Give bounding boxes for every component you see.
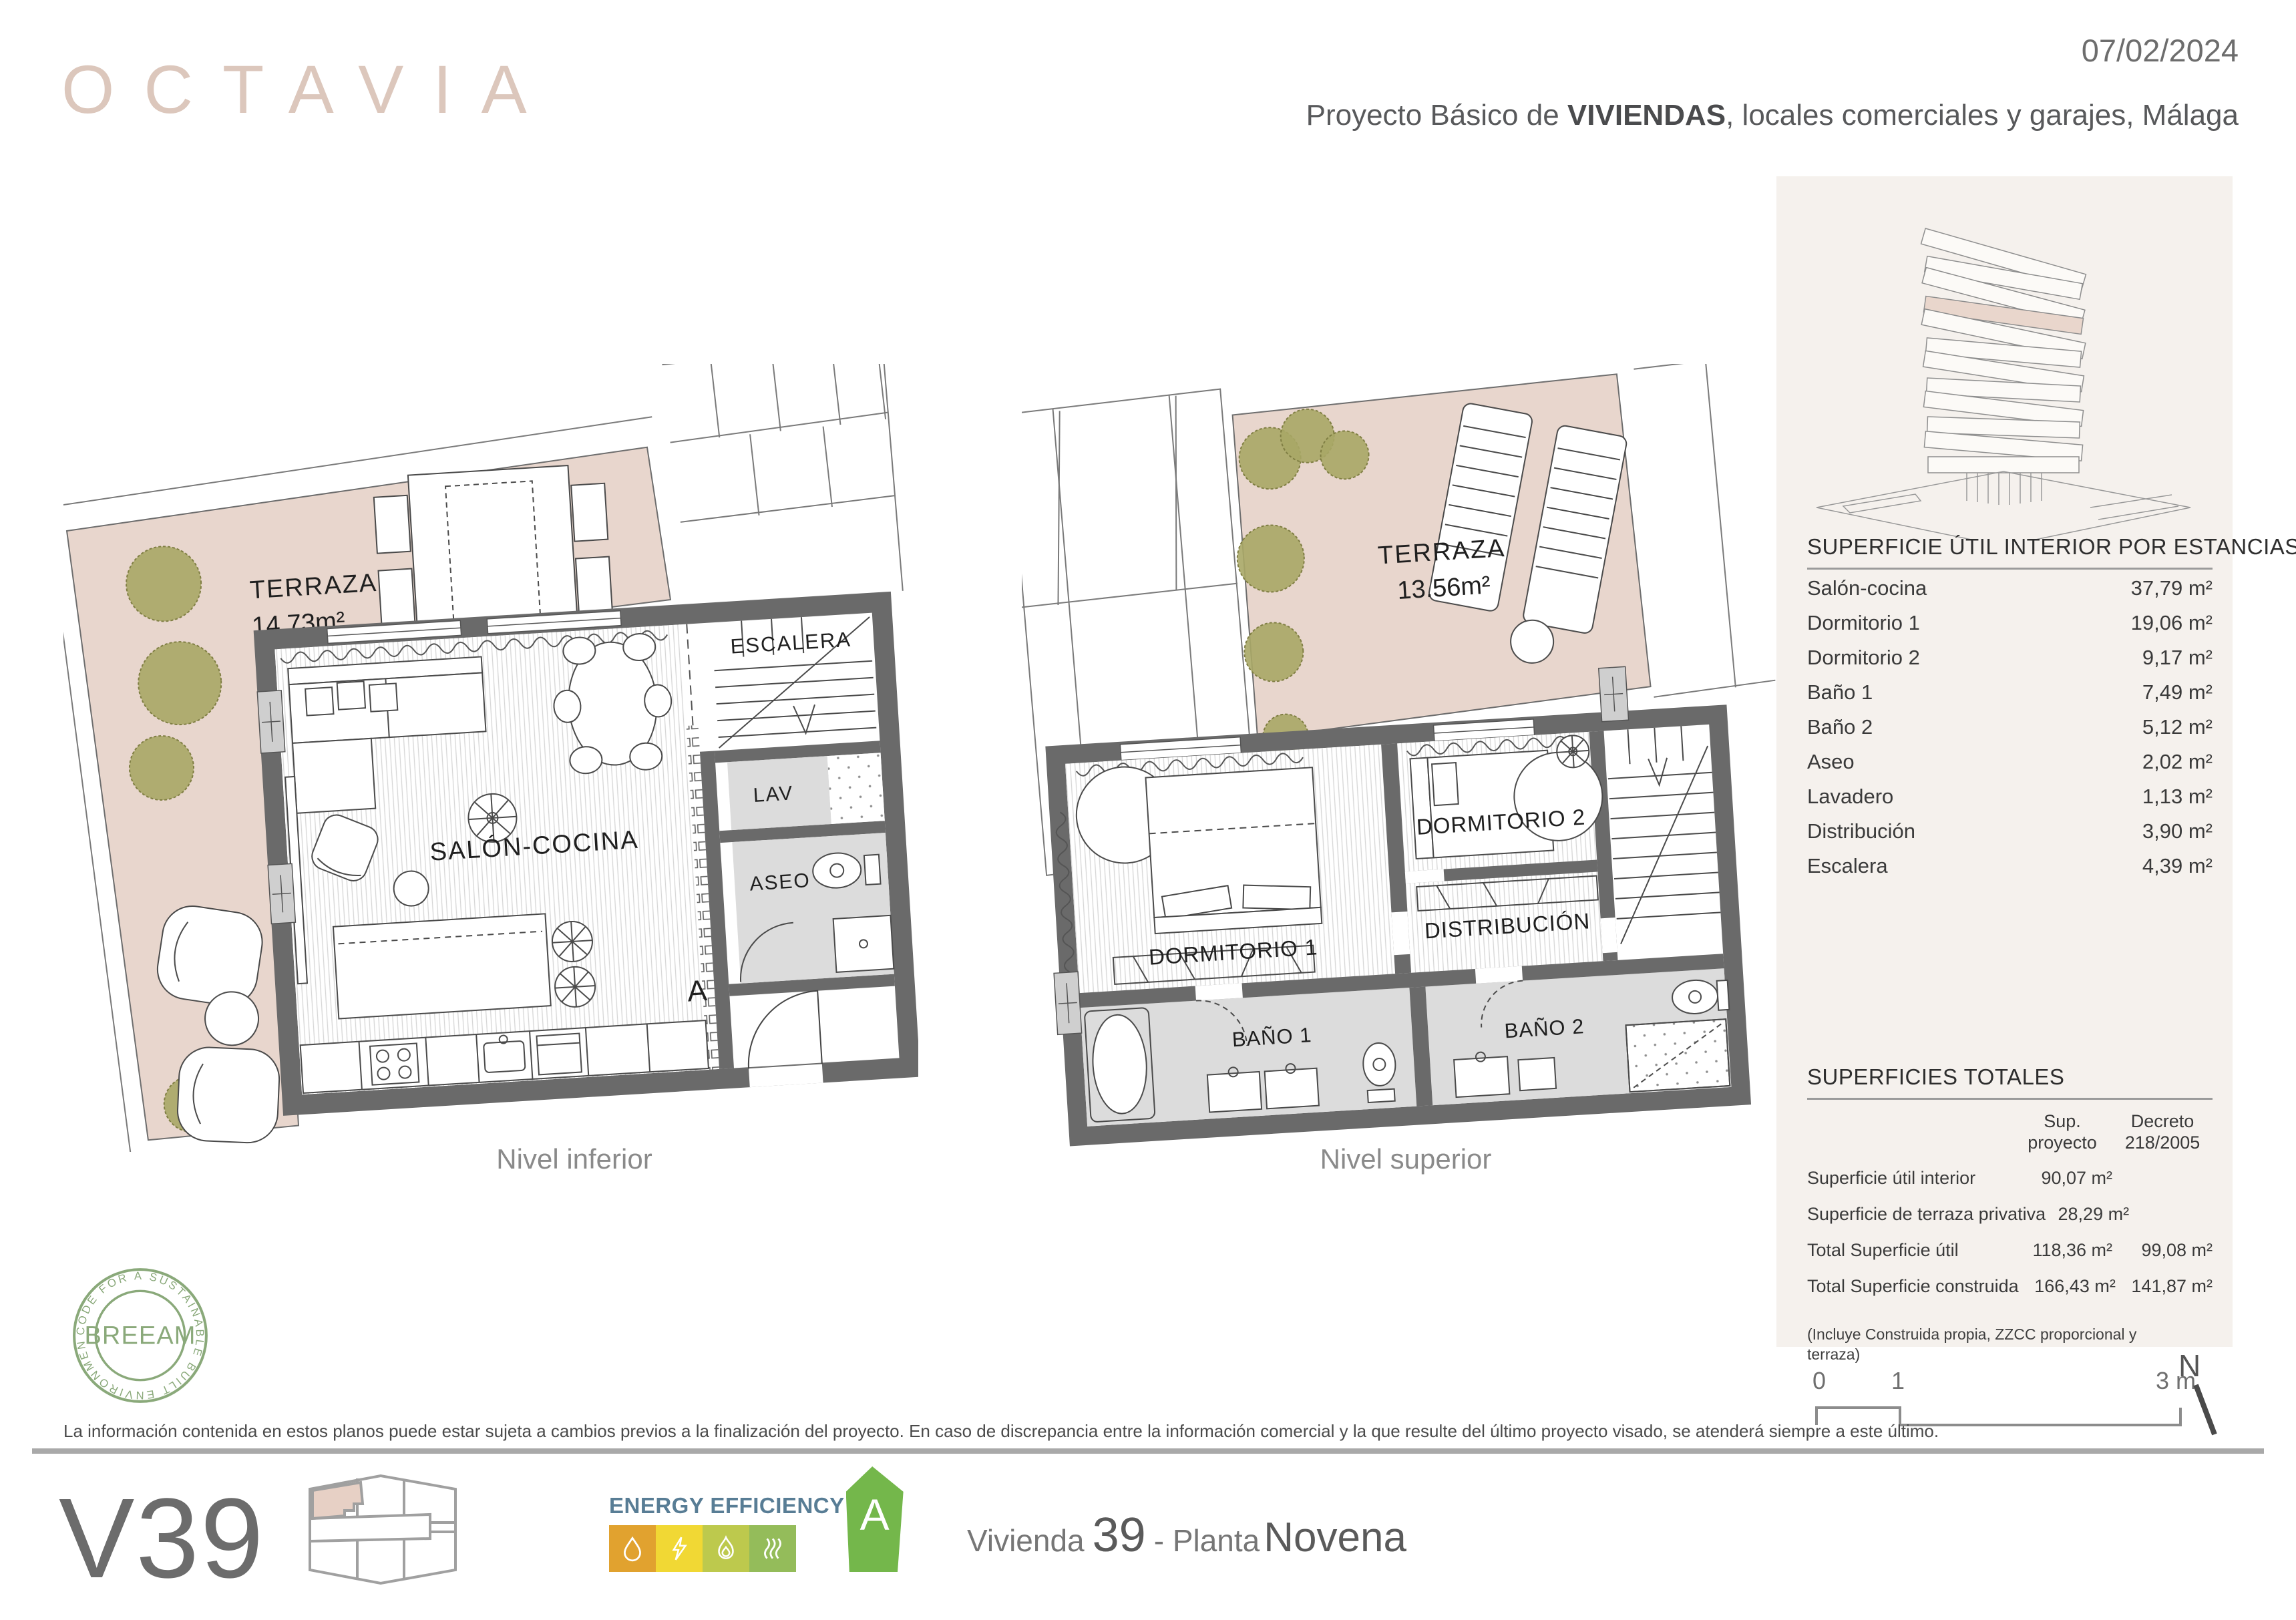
breeam-center-text: BREEAM	[84, 1322, 196, 1350]
row-value: 5,12 m²	[2142, 715, 2213, 739]
floorplan-nivel-superior: TERRAZA 13.56m²	[1022, 364, 1783, 1152]
footnote-line1: (Incluye Construida propia, ZZCC proporc…	[1807, 1326, 2136, 1343]
row-label: Superficie de terraza privativa	[1807, 1204, 2046, 1225]
row-label: Baño 1	[1807, 680, 1873, 704]
table-row: Dormitorio 29,17 m²	[1807, 646, 2213, 680]
unit-code: V39	[59, 1473, 264, 1604]
date: 07/02/2024	[2082, 32, 2239, 69]
brand-logo: OCTAVIA	[61, 51, 556, 129]
table-row: Distribución3,90 m²	[1807, 819, 2213, 854]
floor-name: Novena	[1264, 1514, 1406, 1561]
summary-panel: SUPERFICIE ÚTIL INTERIOR POR ESTANCIAS S…	[1776, 176, 2233, 1347]
terrace-area-value: 13.56m²	[1396, 572, 1491, 605]
table-row: Aseo2,02 m²	[1807, 750, 2213, 785]
building-illustration	[1803, 192, 2204, 540]
areas-table: SUPERFICIE ÚTIL INTERIOR POR ESTANCIAS S…	[1807, 534, 2213, 889]
caption-nivel-inferior: Nivel inferior	[434, 1143, 715, 1175]
breeam-stamp-icon: CODE FOR A SUSTAINABLE BUILT ENVIRONMENT…	[63, 1259, 217, 1412]
row-proyecto: 118,36 m²	[2012, 1240, 2112, 1261]
bano2-label: BAÑO 2	[1504, 1014, 1585, 1042]
electricity-icon	[656, 1525, 703, 1572]
row-label: Baño 2	[1807, 715, 1873, 739]
col-decreto: Decreto 218/2005	[2112, 1110, 2213, 1153]
highlighted-unit	[313, 1482, 363, 1518]
energy-scale	[609, 1525, 845, 1572]
row-value: 3,90 m²	[2142, 819, 2213, 843]
dwelling-label: Vivienda	[967, 1523, 1085, 1559]
row-value: 2,02 m²	[2142, 750, 2213, 774]
table-row: Baño 17,49 m²	[1807, 680, 2213, 715]
col-sup-proyecto: Sup. proyecto	[2012, 1110, 2112, 1153]
row-label: Salón-cocina	[1807, 576, 1927, 600]
row-label: Escalera	[1807, 854, 1888, 878]
lav-label: LAV	[753, 782, 794, 807]
bano1-label: BAÑO 1	[1231, 1023, 1313, 1051]
plan-sheet-page: OCTAVIA 07/02/2024 Proyecto Básico de VI…	[0, 0, 2296, 1620]
gas-icon	[703, 1525, 749, 1572]
scale-tick-1: 1	[1891, 1367, 1905, 1394]
row-label: Lavadero	[1807, 785, 1893, 809]
subtitle-post: , locales comerciales y garajes, Málaga	[1726, 99, 2239, 132]
row-proyecto: 90,07 m²	[2012, 1168, 2112, 1189]
caption-nivel-superior: Nivel superior	[1266, 1143, 1546, 1175]
table-row: Superficie de terraza privativa28,29 m²	[1807, 1204, 2213, 1240]
floorplan-nivel-inferior: TERRAZA 14.73m²	[63, 364, 918, 1152]
floor-label: - Planta	[1154, 1523, 1260, 1559]
row-value: 9,17 m²	[2142, 646, 2213, 670]
table-row: Dormitorio 119,06 m²	[1807, 611, 2213, 646]
table-row: Escalera4,39 m²	[1807, 854, 2213, 889]
areas-table-title: SUPERFICIE ÚTIL INTERIOR POR ESTANCIAS	[1807, 534, 2213, 570]
escalera-label: ESCALERA	[730, 628, 852, 658]
table-row: Total Superficie construida166,43 m²141,…	[1807, 1276, 2213, 1312]
section-mark-a: A	[687, 974, 709, 1008]
row-proyecto: 166,43 m²	[2019, 1276, 2116, 1297]
row-label: Distribución	[1807, 819, 1915, 843]
unit-locator-keyplan	[280, 1466, 467, 1607]
row-label: Dormitorio 1	[1807, 611, 1920, 635]
row-decreto: 99,08 m²	[2112, 1240, 2213, 1261]
totals-header: Sup. proyecto Decreto 218/2005	[1807, 1110, 2213, 1153]
row-value: 7,49 m²	[2142, 680, 2213, 704]
dwelling-title: Vivienda 39 - Planta Novena	[967, 1508, 1406, 1563]
totals-table-title: SUPERFICIES TOTALES	[1807, 1064, 2213, 1100]
footnote-line2: terraza)	[1807, 1346, 1860, 1363]
row-label: Superficie útil interior	[1807, 1168, 2012, 1189]
row-label: Total Superficie construida	[1807, 1276, 2019, 1297]
row-value: 4,39 m²	[2142, 854, 2213, 878]
table-row: Total Superficie útil118,36 m²99,08 m²	[1807, 1240, 2213, 1276]
north-label: N	[2178, 1348, 2201, 1384]
energy-rating-arrow: A	[846, 1466, 904, 1572]
scale-tick-0: 0	[1812, 1367, 1826, 1394]
footer-divider	[32, 1448, 2264, 1454]
table-row: Superficie útil interior90,07 m²	[1807, 1168, 2213, 1204]
aseo-label: ASEO	[749, 869, 811, 895]
dwelling-number: 39	[1093, 1508, 1146, 1563]
table-row: Baño 25,12 m²	[1807, 715, 2213, 750]
north-arrow-icon	[2184, 1380, 2231, 1440]
project-subtitle: Proyecto Básico de VIVIENDAS, locales co…	[1306, 99, 2239, 132]
heating-icon	[749, 1525, 796, 1572]
row-label: Total Superficie útil	[1807, 1240, 2012, 1261]
row-value: 37,79 m²	[2131, 576, 2213, 600]
entrance-door-arc	[744, 991, 822, 1069]
row-label: Aseo	[1807, 750, 1855, 774]
subtitle-em: VIVIENDAS	[1567, 99, 1726, 132]
energy-badge: ENERGY EFFICIENCY	[609, 1466, 904, 1572]
totals-table: SUPERFICIES TOTALES Sup. proyecto Decret…	[1807, 1064, 2213, 1364]
row-label: Dormitorio 2	[1807, 646, 1920, 670]
disclaimer-text: La información contenida en estos planos…	[63, 1421, 1939, 1442]
row-value: 1,13 m²	[2142, 785, 2213, 809]
energy-rating-letter: A	[860, 1489, 890, 1540]
row-value: 19,06 m²	[2131, 611, 2213, 635]
subtitle-pre: Proyecto Básico de	[1306, 99, 1567, 132]
lav-dots	[827, 753, 885, 824]
row-proyecto: 28,29 m²	[2046, 1204, 2129, 1225]
totals-footnote: (Incluye Construida propia, ZZCC proporc…	[1807, 1324, 2213, 1364]
table-row: Lavadero1,13 m²	[1807, 785, 2213, 819]
section-line	[687, 624, 693, 726]
water-icon	[609, 1525, 656, 1572]
row-decreto: 141,87 m²	[2116, 1276, 2213, 1297]
staircase	[1605, 725, 1722, 944]
energy-title: ENERGY EFFICIENCY	[609, 1493, 845, 1518]
table-row: Salón-cocina37,79 m²	[1807, 576, 2213, 611]
